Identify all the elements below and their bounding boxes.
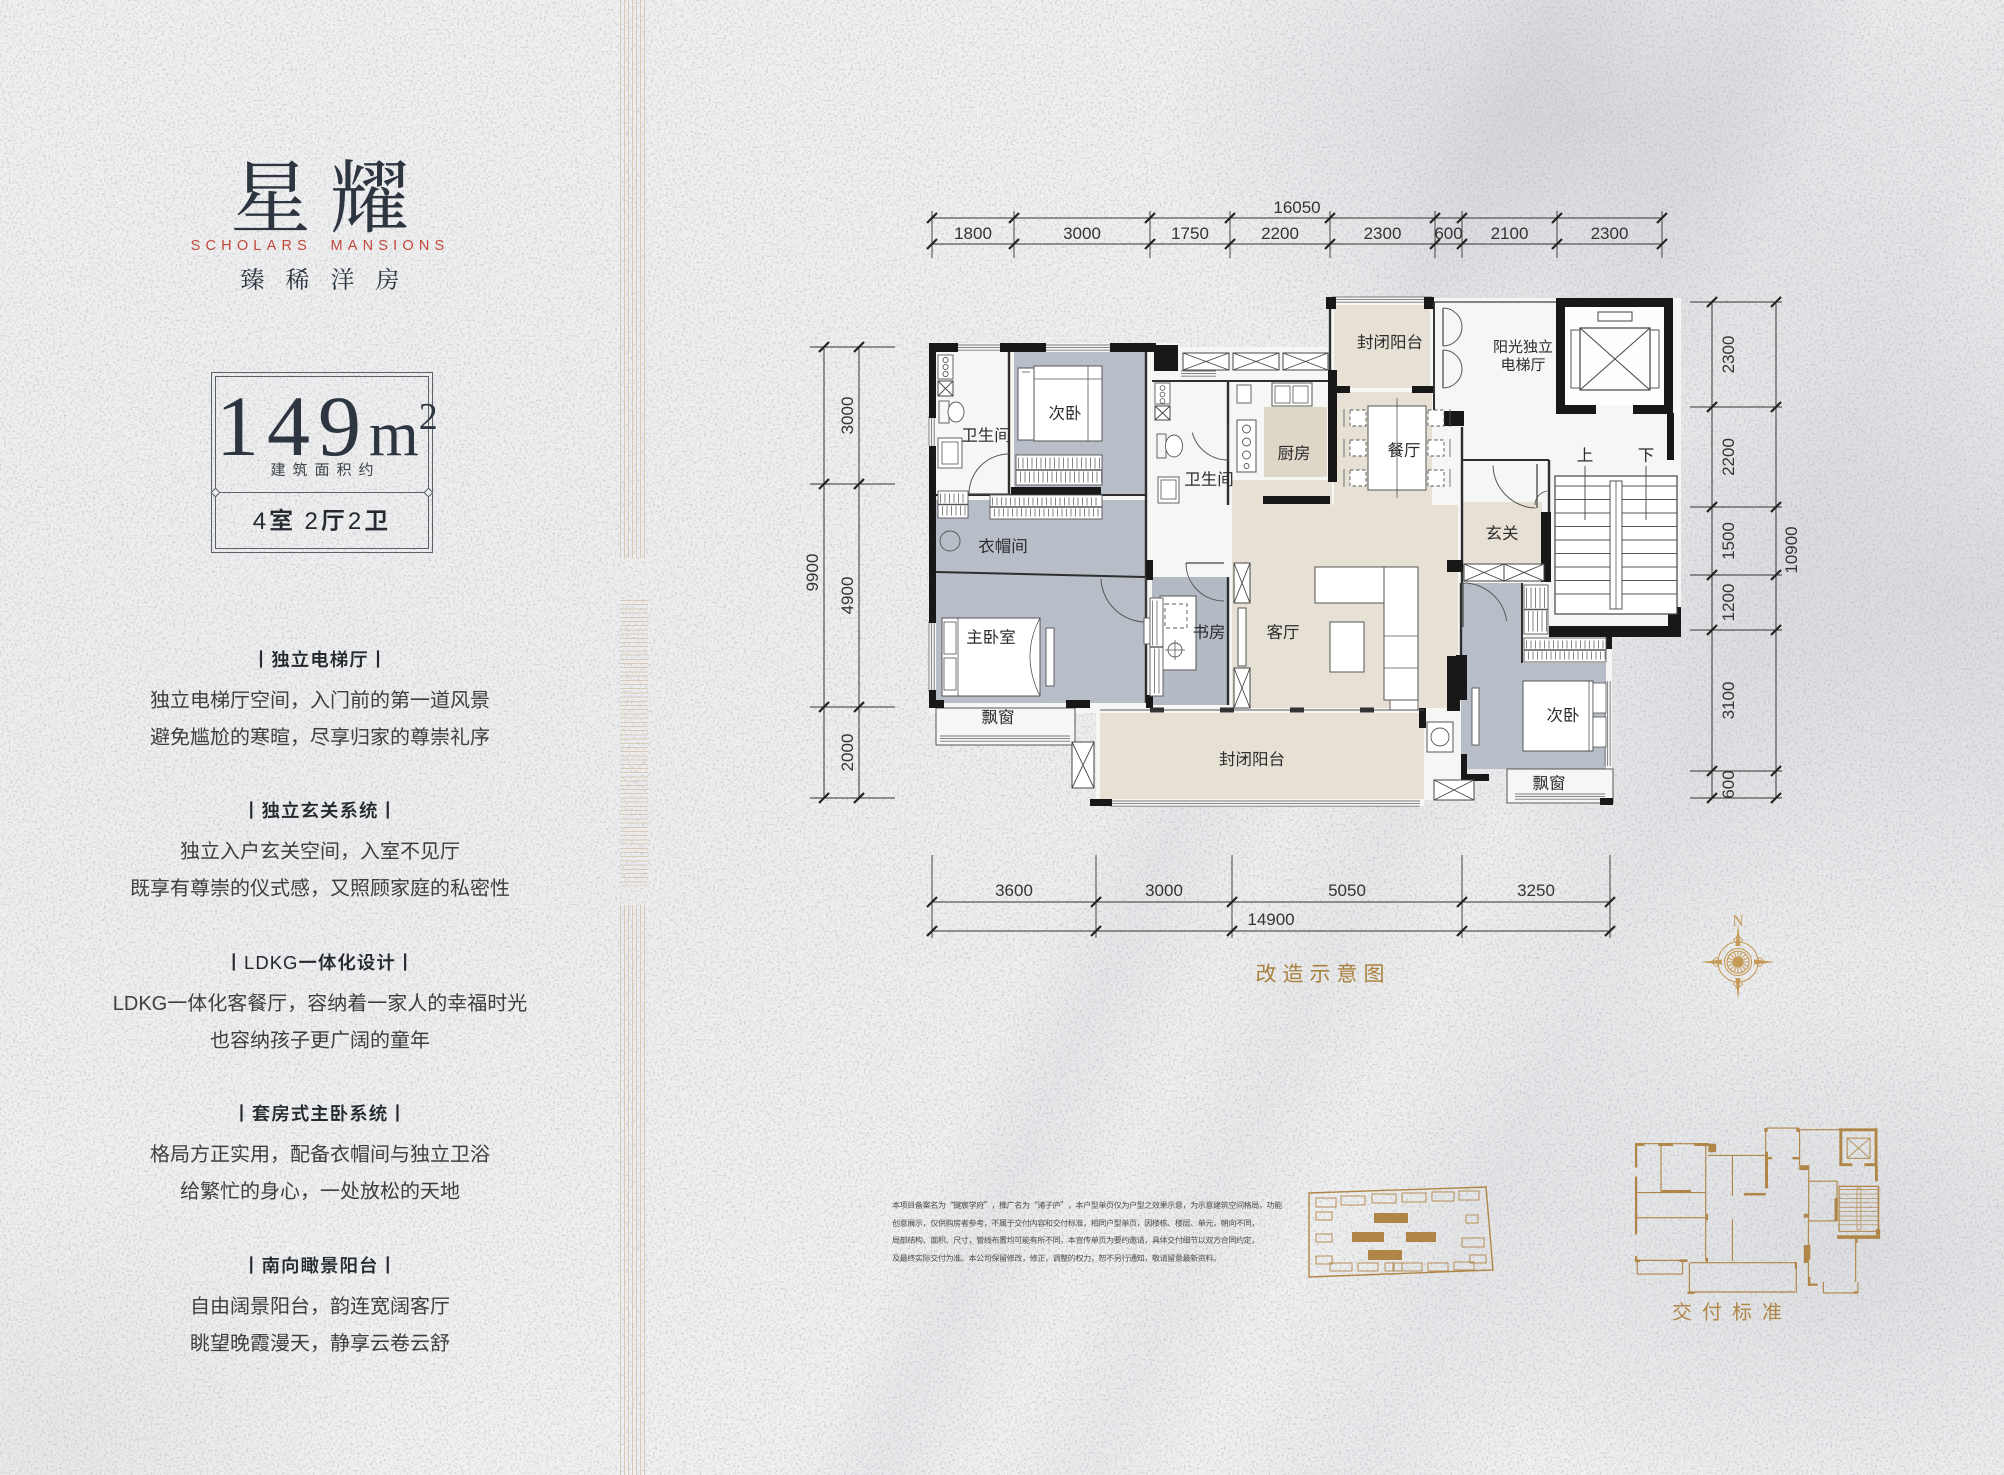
svg-text:600: 600 [1719, 770, 1738, 798]
svg-text:3000: 3000 [1063, 224, 1101, 243]
svg-text:1800: 1800 [954, 224, 992, 243]
svg-text:次卧: 次卧 [1547, 702, 1580, 726]
svg-text:上: 上 [1577, 442, 1594, 466]
svg-text:衣帽间: 衣帽间 [978, 533, 1028, 557]
svg-text:2200: 2200 [1719, 438, 1738, 476]
svg-text:玄关: 玄关 [1486, 520, 1519, 544]
svg-text:下: 下 [1638, 442, 1655, 466]
svg-text:1200: 1200 [1719, 584, 1738, 622]
svg-text:改造示意图: 改造示意图 [1256, 958, 1391, 988]
svg-text:1750: 1750 [1171, 224, 1209, 243]
svg-text:次卧: 次卧 [1049, 400, 1082, 424]
svg-text:餐厅: 餐厅 [1388, 437, 1421, 461]
svg-text:16050: 16050 [1273, 198, 1320, 217]
svg-text:1500: 1500 [1719, 522, 1738, 560]
svg-text:3600: 3600 [995, 881, 1033, 900]
svg-text:2300: 2300 [1719, 336, 1738, 374]
svg-text:5050: 5050 [1328, 881, 1366, 900]
svg-text:厨房: 厨房 [1278, 440, 1311, 464]
svg-text:3100: 3100 [1719, 682, 1738, 720]
svg-text:2200: 2200 [1261, 224, 1299, 243]
svg-text:卫生间: 卫生间 [1184, 466, 1234, 490]
svg-text:客厅: 客厅 [1267, 619, 1300, 643]
svg-text:封闭阳台: 封闭阳台 [1357, 329, 1423, 353]
svg-text:2000: 2000 [838, 734, 857, 772]
svg-text:书房: 书房 [1193, 619, 1226, 643]
svg-text:交付标准: 交付标准 [1672, 1296, 1792, 1325]
svg-text:600: 600 [1434, 224, 1462, 243]
svg-text:9900: 9900 [803, 554, 822, 592]
svg-text:2300: 2300 [1364, 224, 1402, 243]
svg-text:卫生间: 卫生间 [961, 422, 1011, 446]
svg-text:3250: 3250 [1517, 881, 1555, 900]
svg-text:3000: 3000 [838, 397, 857, 435]
svg-text:4900: 4900 [838, 577, 857, 615]
svg-text:2300: 2300 [1591, 224, 1629, 243]
svg-text:封闭阳台: 封闭阳台 [1219, 746, 1285, 770]
svg-text:2100: 2100 [1491, 224, 1529, 243]
svg-text:N: N [1732, 913, 1744, 930]
svg-text:飘窗: 飘窗 [982, 704, 1015, 728]
svg-text:3000: 3000 [1145, 881, 1183, 900]
svg-text:14900: 14900 [1247, 910, 1294, 929]
svg-text:主卧室: 主卧室 [966, 624, 1016, 648]
svg-text:飘窗: 飘窗 [1533, 770, 1566, 794]
svg-text:电梯厅: 电梯厅 [1500, 354, 1545, 375]
svg-text:10900: 10900 [1782, 526, 1801, 573]
